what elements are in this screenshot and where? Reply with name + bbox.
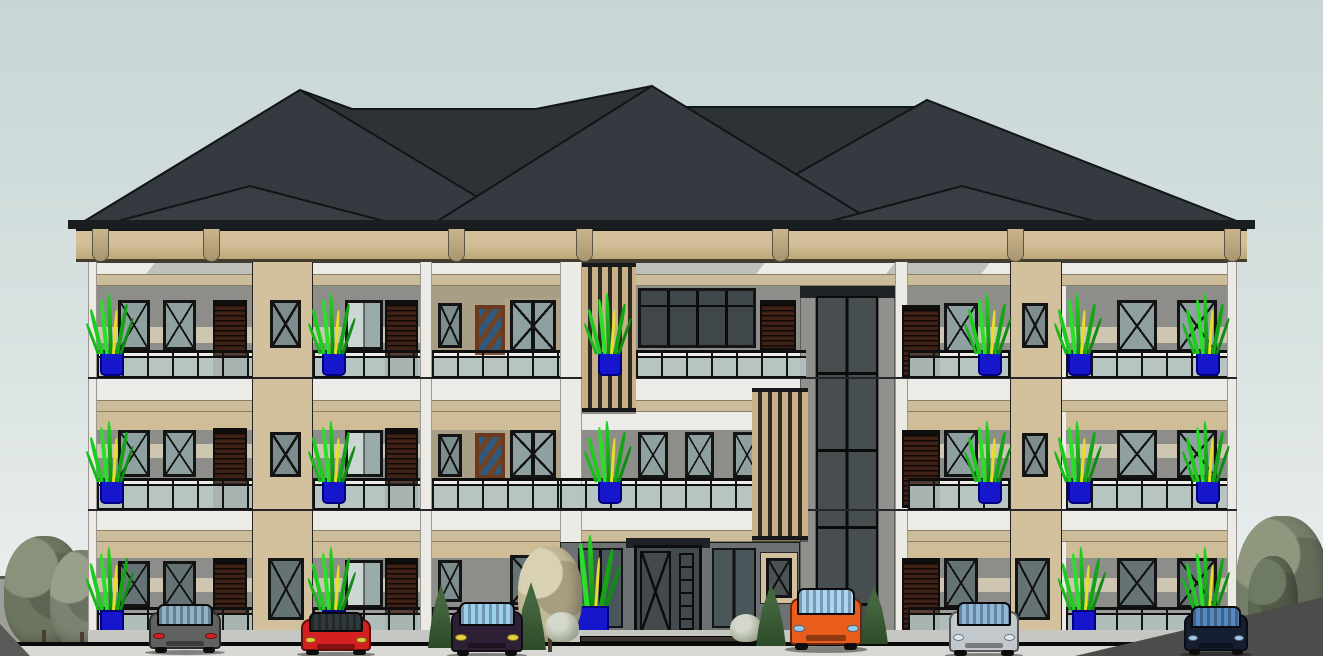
car-grille	[317, 644, 354, 648]
eave-corbel	[203, 228, 220, 262]
car-light-left	[455, 634, 467, 641]
window-casement	[638, 432, 668, 478]
window-casement	[1117, 300, 1157, 352]
balcony-planter	[978, 480, 1002, 504]
car-wheel-right	[203, 647, 216, 653]
stair-tower-frame	[878, 286, 895, 640]
car-light-left	[1188, 635, 1199, 642]
floor2-tan-header	[432, 412, 560, 430]
balcony-plant	[318, 418, 348, 482]
car-wheel-right	[505, 650, 518, 656]
car-light-left	[153, 633, 165, 640]
balcony-plant	[974, 290, 1004, 354]
balcony-plant	[1064, 290, 1094, 354]
car-orange-suv	[788, 585, 864, 649]
balcony-planter	[100, 352, 124, 376]
eave-corbel	[576, 228, 593, 262]
balcony-planter	[1068, 352, 1092, 376]
brown-louver-shutter	[760, 300, 796, 350]
balcony-plant	[594, 418, 624, 482]
eave-corbel	[1224, 228, 1241, 262]
balcony-planter	[100, 480, 124, 504]
entrance-door	[634, 545, 702, 638]
car-grille	[1199, 643, 1233, 648]
car-grille	[468, 643, 507, 649]
balcony-glass-rail	[432, 350, 560, 378]
balcony-plant	[1064, 418, 1094, 482]
car-wheel-left	[954, 650, 966, 656]
column-window-small	[1022, 303, 1048, 348]
eave-corbel	[92, 228, 109, 262]
window-casement	[163, 300, 196, 350]
bush	[545, 612, 579, 642]
window-small	[438, 434, 462, 477]
car-wheel-right	[844, 643, 857, 651]
balcony-glass-rail	[636, 350, 806, 378]
car-light-right	[1004, 634, 1015, 641]
car-navy-sedan	[1183, 604, 1249, 654]
car-wheel-left	[795, 643, 808, 651]
eave-corbel	[1007, 228, 1024, 262]
window-picture-large	[638, 288, 756, 348]
car-red-hatchback	[300, 610, 372, 654]
balcony-planter	[598, 352, 622, 376]
balcony-glass-rail	[432, 478, 560, 510]
balcony-planter	[1068, 480, 1092, 504]
balcony-plant	[1192, 418, 1222, 482]
column-window-small	[270, 432, 301, 477]
balcony-planter	[978, 352, 1002, 376]
car-wheel-right	[1232, 649, 1243, 655]
balcony-glass-rail	[560, 478, 752, 510]
car-windshield	[957, 602, 1012, 626]
car-windshield	[1191, 606, 1241, 628]
window-casement	[1117, 430, 1157, 478]
white-pier	[420, 262, 432, 642]
column-window-small	[270, 300, 301, 348]
balcony-planter	[1196, 352, 1220, 376]
window-small	[438, 303, 462, 348]
car-wheel-left	[457, 650, 470, 656]
car-windshield	[797, 588, 855, 615]
car-grille	[806, 635, 846, 641]
car-windshield	[157, 604, 213, 626]
car-wheel-right	[353, 650, 365, 655]
balcony-plant	[96, 418, 126, 482]
floor1-tan-header	[908, 542, 1010, 558]
balcony-planter	[322, 352, 346, 376]
window-casement	[1117, 558, 1157, 608]
car-light-left	[953, 634, 964, 641]
balcony-plant	[1068, 544, 1098, 610]
window-pair	[510, 300, 556, 352]
car-light-right	[205, 633, 217, 640]
car-light-right	[847, 625, 859, 633]
car-silver-sedan	[948, 600, 1020, 655]
car-wheel-right	[1001, 650, 1013, 656]
car-light-right	[356, 637, 367, 643]
car-windshield	[309, 612, 364, 632]
timber-louver-screen	[752, 388, 808, 540]
balcony-plant	[974, 418, 1004, 482]
column-window-small	[1022, 433, 1048, 477]
car-grille	[965, 643, 1002, 649]
car-light-left	[305, 637, 316, 643]
window-casement	[685, 432, 714, 478]
car-wheel-left	[155, 647, 168, 653]
balcony-plant	[318, 544, 348, 610]
balcony-plant	[96, 290, 126, 354]
car-wheel-left	[1189, 649, 1200, 655]
car-grille	[166, 641, 205, 646]
balcony-planter	[322, 480, 346, 504]
spiral-stair-window	[475, 433, 505, 479]
balcony-plant	[318, 290, 348, 354]
balcony-planter	[598, 480, 622, 504]
car-windshield	[459, 602, 515, 626]
column-window-tall	[1015, 558, 1050, 620]
column-window-tall	[268, 558, 304, 620]
window-casement	[163, 430, 196, 477]
car-purple-compact	[450, 600, 524, 655]
elevation-scene	[0, 0, 1323, 656]
eave-corbel	[448, 228, 465, 262]
balcony-planter	[1196, 480, 1220, 504]
eave-corbel	[772, 228, 789, 262]
balcony-plant	[1192, 544, 1222, 610]
scene-layers	[0, 0, 1323, 656]
car-light-right	[507, 634, 519, 641]
balcony-plant	[594, 290, 624, 354]
spiral-stair-window	[475, 305, 505, 355]
fascia-band	[76, 229, 1247, 262]
balcony-plant	[96, 544, 126, 610]
window-casement	[163, 561, 196, 607]
car-wheel-left	[306, 650, 318, 655]
balcony-plant	[1192, 290, 1222, 354]
window-pair	[510, 430, 556, 478]
car-grey-sedan	[148, 602, 222, 652]
